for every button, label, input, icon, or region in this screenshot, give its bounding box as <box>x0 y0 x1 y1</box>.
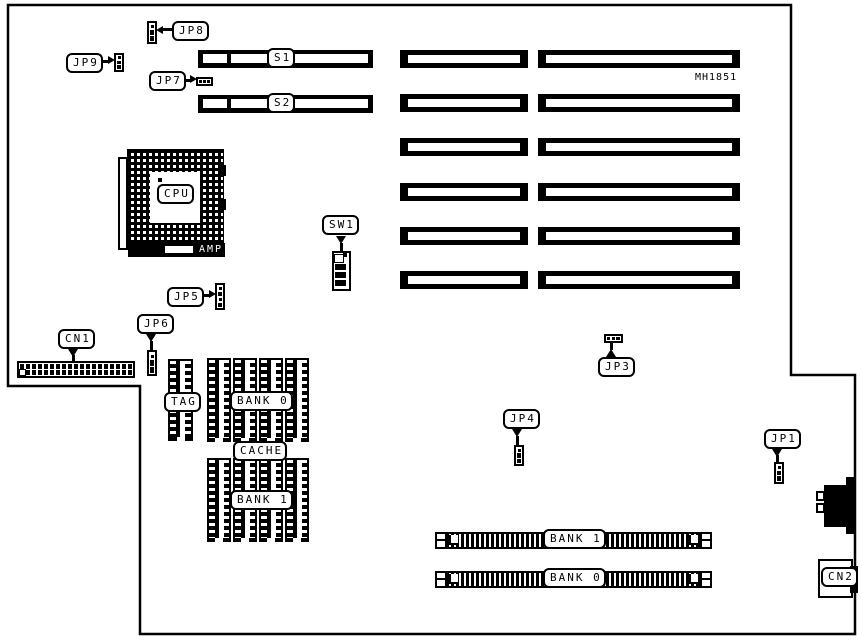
expansion-slot <box>400 50 528 68</box>
cpu-socket-lever <box>118 157 128 250</box>
simm-end-cap <box>435 571 447 588</box>
expansion-slot <box>400 183 528 201</box>
jp9-jumper <box>114 53 124 72</box>
amp-brand-text: AMP <box>199 245 225 255</box>
keyboard-connector-tab <box>816 503 825 513</box>
cn1-label: CN1 <box>58 329 95 349</box>
expansion-slot <box>400 138 528 156</box>
cpu-label: CPU <box>157 184 194 204</box>
expansion-slot <box>538 50 740 68</box>
simm-latch <box>449 574 458 584</box>
s1-label: S1 <box>267 48 295 68</box>
sw1-dip-switch <box>332 251 351 291</box>
callout-pointer <box>146 334 156 342</box>
simm-latch <box>449 535 458 545</box>
switch-position <box>335 264 346 270</box>
jp3-jumper <box>604 334 623 343</box>
jp3-label: JP3 <box>598 357 635 377</box>
jp6-jumper <box>147 350 157 376</box>
cpu-socket-tab <box>221 199 226 210</box>
jp5-label: JP5 <box>167 287 204 307</box>
jp4-label: JP4 <box>503 409 540 429</box>
sw1-label: SW1 <box>322 215 359 235</box>
simm-latch <box>689 535 698 545</box>
expansion-slot <box>538 94 740 112</box>
simm-end-cap <box>435 532 447 549</box>
cpu-pin1-marker <box>158 178 162 182</box>
switch-notch <box>343 253 347 257</box>
cpu-socket-handle: AMP <box>128 243 225 257</box>
expansion-slot <box>538 138 740 156</box>
jp9-label: JP9 <box>66 53 103 73</box>
slot-segment <box>203 99 227 108</box>
simm-end-cap <box>700 532 712 549</box>
callout-pointer <box>606 349 616 357</box>
switch-position <box>335 280 346 286</box>
slot-segment <box>231 99 368 108</box>
simm-latch <box>689 574 698 584</box>
switch-position <box>335 272 346 278</box>
keyboard-connector <box>824 485 848 527</box>
jp6-label: JP6 <box>137 314 174 334</box>
keyboard-connector <box>846 477 856 534</box>
cn2-label: CN2 <box>821 567 858 587</box>
simm-bank1-label: BANK 1 <box>543 529 606 549</box>
callout-pointer <box>156 26 163 34</box>
jp1-label: JP1 <box>764 429 801 449</box>
jp4-jumper <box>514 445 524 466</box>
motherboard-diagram: MH1851 S1 S2 CPU AMP SW1 <box>0 0 862 642</box>
expansion-slot <box>538 271 740 289</box>
cpu-socket-tab <box>221 165 226 176</box>
expansion-slot <box>538 227 740 245</box>
jp1-jumper <box>774 462 784 484</box>
expansion-slot <box>538 183 740 201</box>
jp5-jumper <box>215 283 225 310</box>
callout-pointer <box>336 236 346 244</box>
cache-bank1-chip <box>207 458 231 542</box>
cache-label: CACHE <box>233 441 287 461</box>
simm-bank0-label: BANK 0 <box>543 568 606 588</box>
callout-pointer <box>512 429 522 437</box>
part-number-text: MH1851 <box>695 72 737 83</box>
jp8-label: JP8 <box>172 21 209 41</box>
cache-bank1-label: BANK 1 <box>230 490 293 510</box>
expansion-slot <box>400 94 528 112</box>
jp8-jumper <box>147 21 157 44</box>
cn1-pin1-marker <box>19 369 26 376</box>
jp7-jumper <box>196 77 213 86</box>
slot-segment <box>231 54 368 63</box>
simm-end-cap <box>700 571 712 588</box>
cache-bank0-chip <box>207 358 231 442</box>
tag-label: TAG <box>164 392 201 412</box>
expansion-slot <box>400 271 528 289</box>
callout-pointer <box>772 449 782 457</box>
jp7-label: JP7 <box>149 71 186 91</box>
slot-segment <box>203 54 227 63</box>
cache-bank0-label: BANK 0 <box>230 391 293 411</box>
keyboard-connector-tab <box>816 491 825 501</box>
s2-label: S2 <box>267 93 295 113</box>
callout-pointer <box>68 349 78 357</box>
expansion-slot <box>400 227 528 245</box>
cn1-pin-header <box>17 361 135 378</box>
handle-window <box>165 246 193 253</box>
